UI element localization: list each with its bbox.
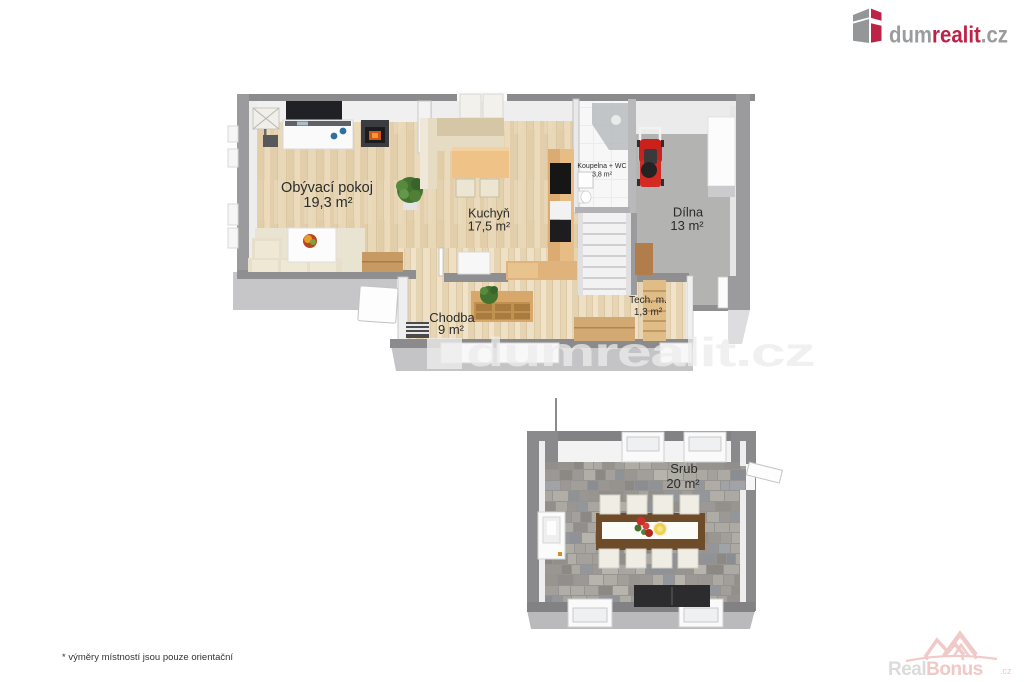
svg-text:.cz: .cz (1000, 666, 1012, 676)
svg-text:1,3 m²: 1,3 m² (634, 307, 663, 318)
svg-text:Srub: Srub (670, 461, 697, 476)
svg-text:dumrealit.cz: dumrealit.cz (889, 22, 1008, 48)
svg-text:20 m²: 20 m² (666, 476, 700, 491)
svg-text:17,5 m²: 17,5 m² (468, 220, 510, 234)
svg-text:19,3 m²: 19,3 m² (303, 195, 352, 211)
svg-text:dumrealit.cz: dumrealit.cz (466, 329, 815, 375)
svg-text:Kuchyň: Kuchyň (468, 207, 510, 221)
svg-text:RealBonus: RealBonus (888, 659, 983, 680)
svg-text:Tech. m.: Tech. m. (629, 295, 667, 306)
svg-text:3,8 m²: 3,8 m² (592, 172, 613, 179)
svg-text:* výměry místností jsou pouze: * výměry místností jsou pouze orientační (62, 652, 233, 663)
svg-text:Koupelna + WC: Koupelna + WC (577, 163, 626, 170)
svg-text:9 m²: 9 m² (438, 322, 465, 337)
svg-text:Obývací pokoj: Obývací pokoj (281, 180, 373, 196)
svg-text:13 m²: 13 m² (670, 218, 704, 233)
